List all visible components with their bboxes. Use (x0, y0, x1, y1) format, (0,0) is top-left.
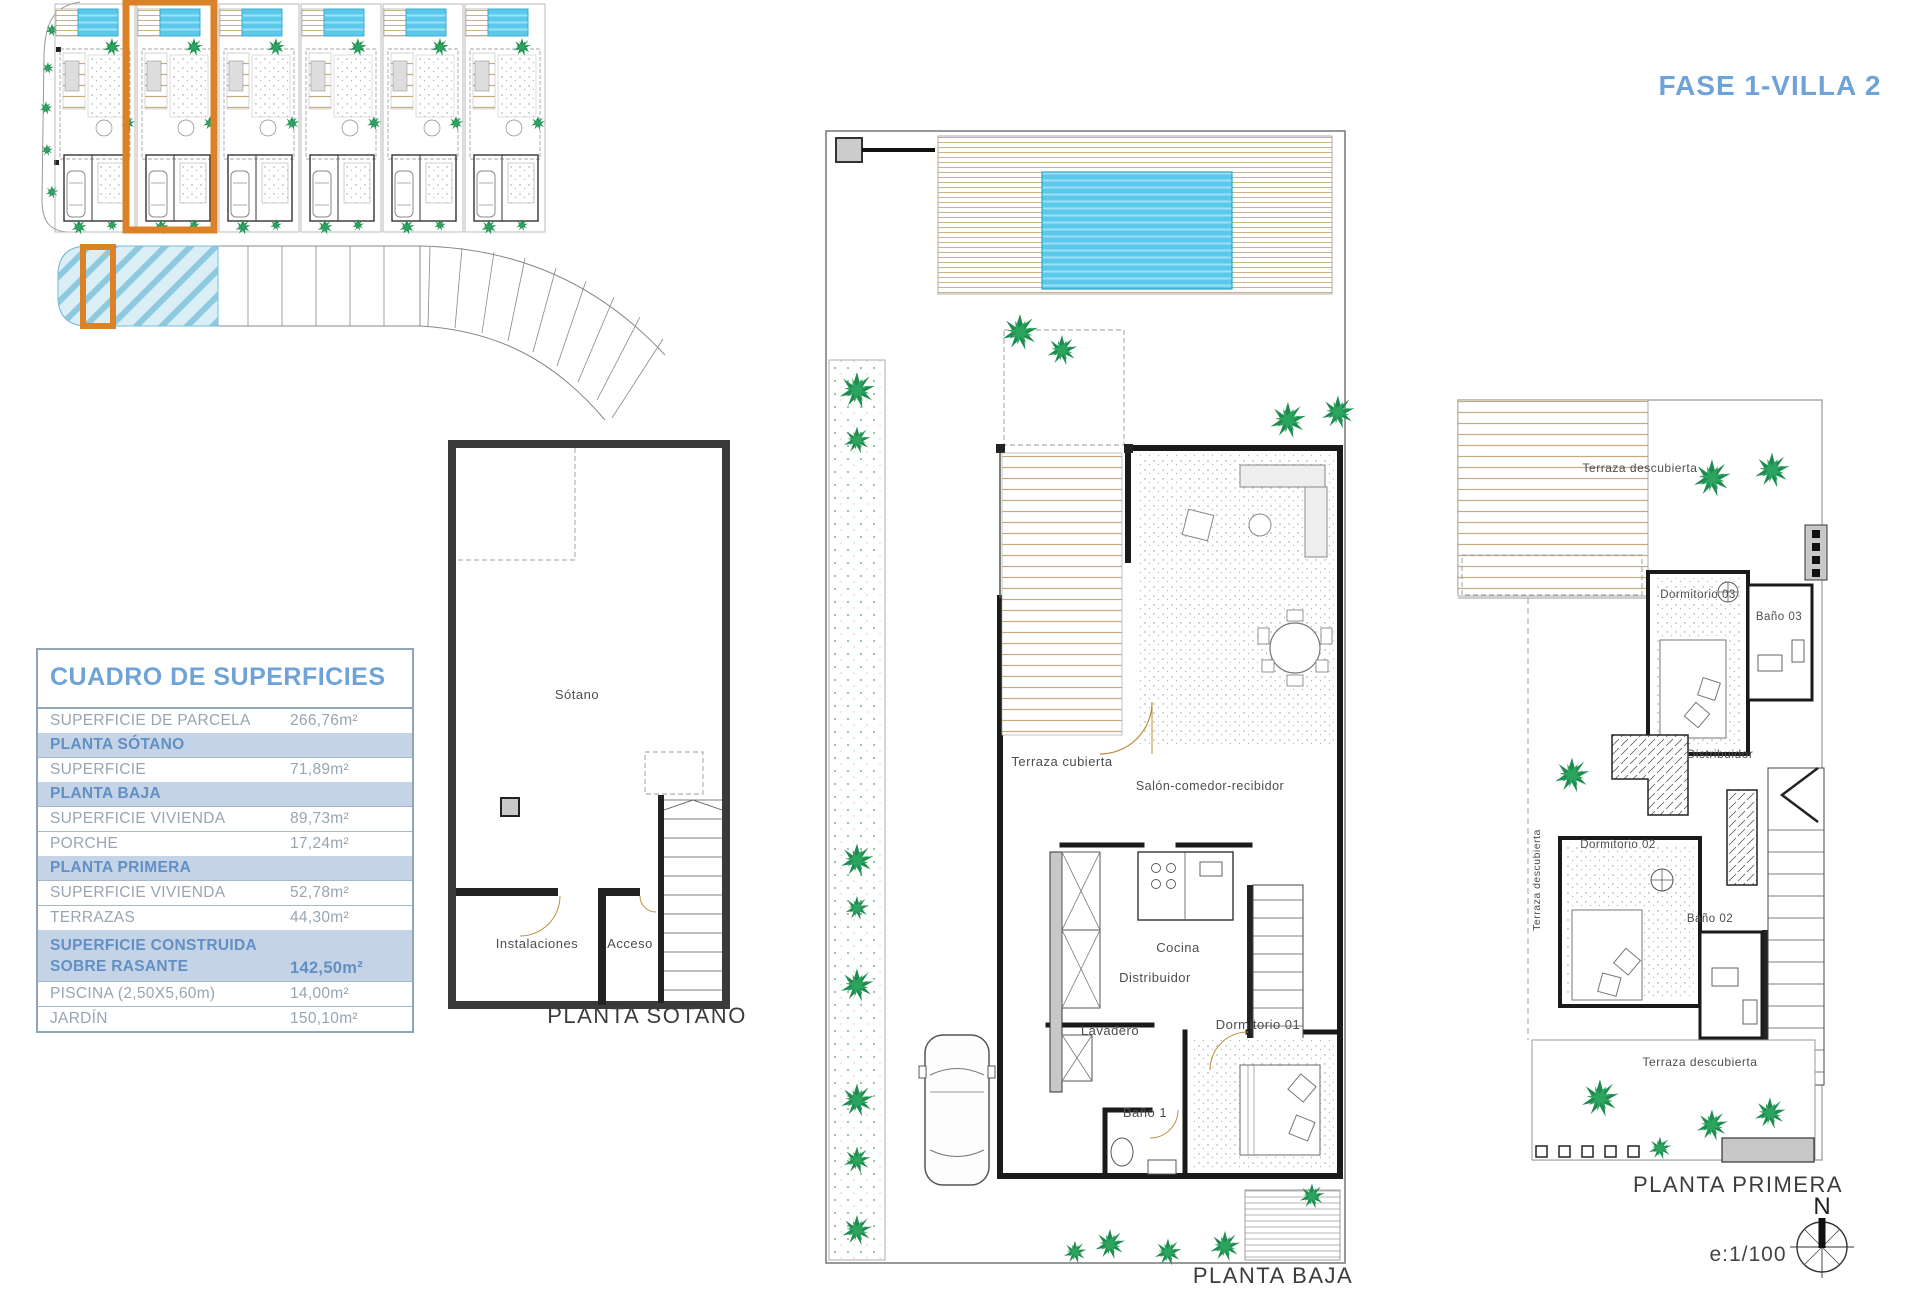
row-label: PORCHE (50, 835, 290, 853)
room-label-cocina: Cocina (1156, 940, 1200, 955)
table-section-row: PLANTA PRIMERA (38, 856, 412, 880)
table-row: SUPERFICIE VIVIENDA52,78m² (38, 880, 412, 905)
row-label: SUPERFICIE DE PARCELA (50, 712, 290, 730)
parking-area (58, 246, 665, 420)
plan-label-baja: PLANTA BAJA (1133, 1263, 1413, 1289)
room-label-dormitorio02: Dormitorio 02 (1580, 839, 1656, 851)
room-label-terraza-desc-left: Terraza descubierta (1531, 829, 1543, 931)
room-label-bano03: Baño 03 (1756, 611, 1802, 623)
row-label: PLANTA PRIMERA (50, 859, 290, 877)
table-row: SUPERFICIE DE PARCELA266,76m² (38, 709, 412, 733)
table-row: SUPERFICIE71,89m² (38, 757, 412, 782)
page-title: FASE 1-VILLA 2 (1630, 70, 1910, 102)
first-floor-plan: Terraza descubierta Dormitorio 03 Baño 0… (1458, 400, 1827, 1162)
table-row: JARDÍN150,10m² (38, 1006, 412, 1031)
surfaces-table-title: CUADRO DE SUPERFICIES (38, 650, 412, 709)
row-label: SUPERFICIE VIVIENDA (50, 810, 290, 828)
basement-plan: Sótano Instalaciones Acceso (452, 444, 726, 1005)
row-label: JARDÍN (50, 1010, 290, 1028)
table-section-row: PLANTA BAJA (38, 782, 412, 806)
row-label: TERRAZAS (50, 909, 290, 927)
room-label-distribuidor-p1: Distribuidor (1687, 747, 1754, 761)
row-label: SUPERFICIE CONSTRUIDA SOBRE RASANTE (50, 936, 290, 978)
room-label-terraza-cubierta: Terraza cubierta (1011, 754, 1112, 769)
table-row: PORCHE17,24m² (38, 831, 412, 856)
room-label-acceso: Acceso (607, 936, 653, 951)
room-label-dormitorio03: Dormitorio 03 (1660, 589, 1736, 601)
table-row: PISCINA (2,50X5,60m)14,00m² (38, 981, 412, 1006)
pool (1042, 172, 1232, 289)
row-value: 14,00m² (290, 985, 412, 1003)
table-row: TERRAZAS44,30m² (38, 905, 412, 930)
room-label-lavadero: Lavadero (1081, 1023, 1139, 1038)
room-label-bano1: Baño 1 (1123, 1105, 1167, 1120)
plan-label-sotano: PLANTA SÓTANO (507, 1003, 787, 1029)
row-label: PISCINA (2,50X5,60m) (50, 985, 290, 1003)
row-value: 44,30m² (290, 909, 412, 927)
room-label-dormitorio01: Dormitorio 01 (1216, 1017, 1301, 1032)
ground-floor-plan: Terraza cubierta Salón-comedor-recibidor… (826, 131, 1355, 1266)
row-label: PLANTA SÓTANO (50, 736, 290, 754)
room-label-bano02: Baño 02 (1687, 913, 1733, 925)
room-label-distribuidor-pb: Distribuidor (1119, 970, 1191, 985)
room-label-terraza-desc-bottom: Terraza descubierta (1643, 1055, 1758, 1069)
room-label-instalaciones: Instalaciones (496, 936, 578, 951)
room-label-salon: Salón-comedor-recibidor (1136, 779, 1284, 793)
table-row: SUPERFICIE VIVIENDA89,73m² (38, 806, 412, 831)
surfaces-rows: SUPERFICIE DE PARCELA266,76m²PLANTA SÓTA… (38, 709, 412, 1031)
architectural-drawing: Sótano Instalaciones Acceso (0, 0, 1920, 1280)
row-value: 71,89m² (290, 761, 412, 779)
row-value: 142,50m² (290, 959, 412, 978)
row-value: 52,78m² (290, 884, 412, 902)
surfaces-table: CUADRO DE SUPERFICIES SUPERFICIE DE PARC… (36, 648, 414, 1033)
room-label-sotano: Sótano (555, 687, 599, 702)
scale-label: e:1/100 (1693, 1243, 1803, 1267)
row-value: 150,10m² (290, 1010, 412, 1028)
site-plan (40, 2, 665, 420)
row-label: SUPERFICIE (50, 761, 290, 779)
car (919, 1035, 995, 1185)
row-label: PLANTA BAJA (50, 785, 290, 803)
row-value: 17,24m² (290, 835, 412, 853)
table-section-row: PLANTA SÓTANO (38, 733, 412, 757)
plan-label-primera: PLANTA PRIMERA (1598, 1172, 1878, 1198)
row-value: 89,73m² (290, 810, 412, 828)
row-value: 266,76m² (290, 712, 412, 730)
table-section-row: SUPERFICIE CONSTRUIDA SOBRE RASANTE142,5… (38, 930, 412, 981)
room-label-terraza-desc-top: Terraza descubierta (1583, 461, 1698, 475)
row-label: SUPERFICIE VIVIENDA (50, 884, 290, 902)
